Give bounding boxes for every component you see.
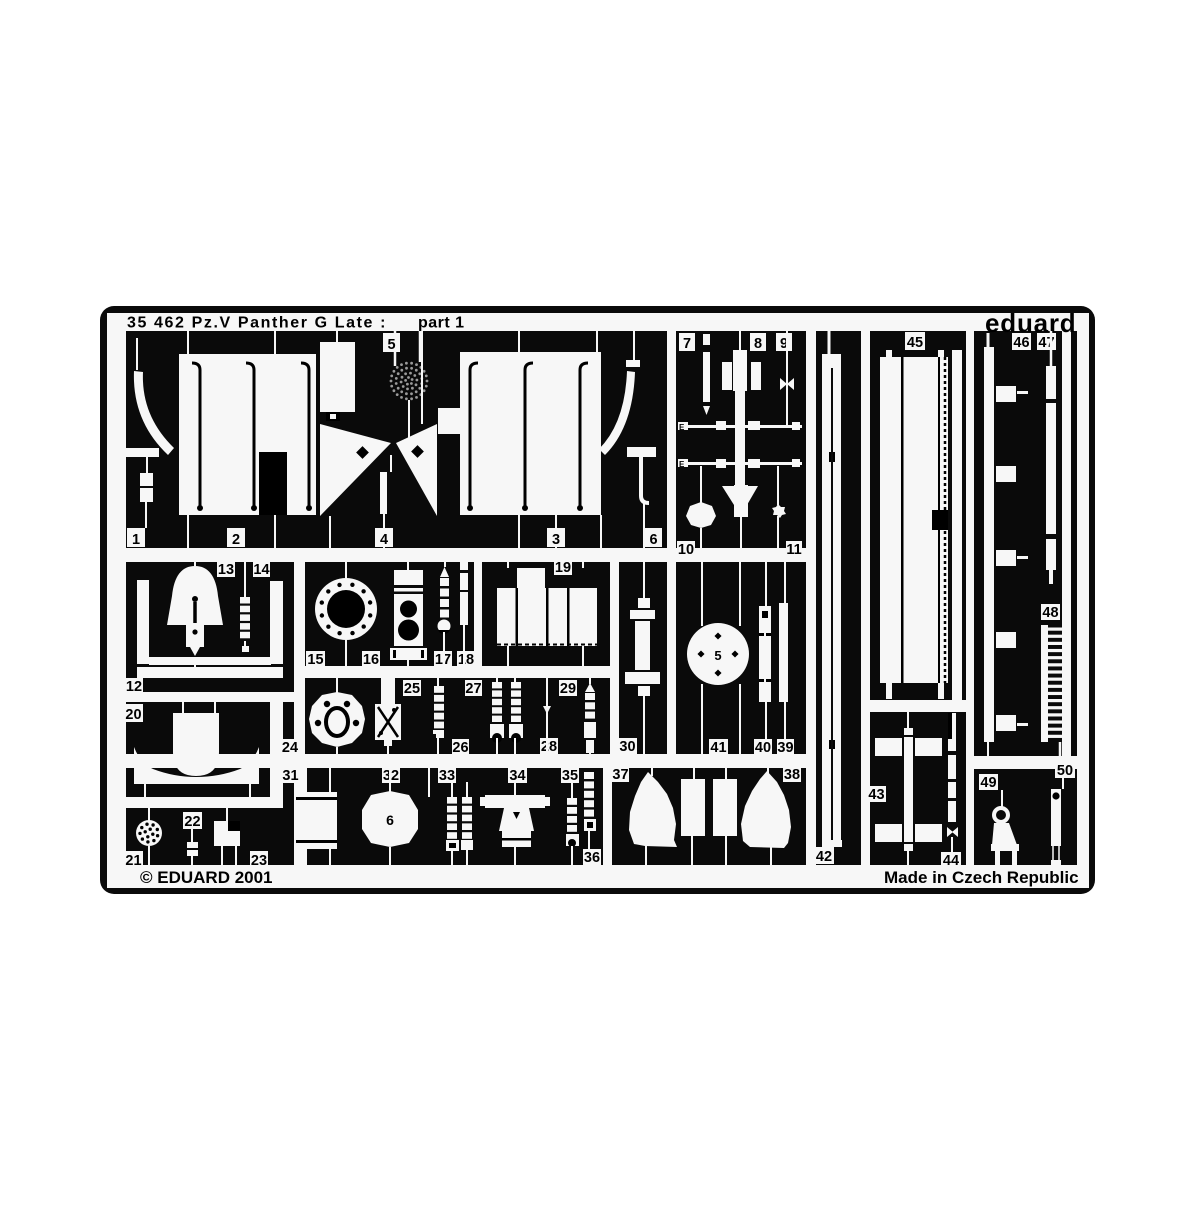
svg-text:20: 20: [125, 707, 141, 723]
svg-text:7: 7: [683, 336, 691, 352]
svg-text:6: 6: [386, 812, 394, 828]
svg-text:5: 5: [387, 337, 395, 353]
svg-text:3: 3: [552, 532, 560, 548]
svg-text:13: 13: [218, 562, 234, 578]
svg-text:35: 35: [562, 768, 578, 784]
svg-text:39: 39: [777, 740, 793, 756]
svg-text:E: E: [679, 460, 685, 469]
svg-text:21: 21: [125, 853, 141, 869]
svg-text:40: 40: [755, 740, 771, 756]
svg-text:© EDUARD 2001: © EDUARD 2001: [140, 868, 273, 887]
svg-text:50: 50: [1057, 763, 1073, 779]
svg-text:37: 37: [612, 767, 628, 783]
svg-text:41: 41: [710, 740, 726, 756]
svg-text:45: 45: [907, 335, 923, 351]
svg-text:22: 22: [184, 814, 200, 830]
svg-text:30: 30: [619, 739, 635, 755]
svg-text:11: 11: [786, 542, 801, 558]
svg-text:27: 27: [465, 681, 481, 697]
svg-text:6: 6: [649, 532, 657, 548]
svg-text:33: 33: [439, 768, 455, 784]
svg-text:12: 12: [126, 679, 142, 695]
svg-text:Made in Czech Republic: Made in Czech Republic: [884, 868, 1079, 887]
svg-text:34: 34: [509, 768, 525, 784]
svg-text:24: 24: [282, 740, 298, 756]
svg-text:29: 29: [560, 681, 576, 697]
svg-text:42: 42: [816, 849, 832, 865]
svg-text:2: 2: [232, 532, 240, 548]
svg-text:48: 48: [1042, 605, 1058, 621]
svg-text:1: 1: [132, 532, 140, 548]
svg-text:18: 18: [458, 652, 474, 668]
svg-text:4: 4: [380, 532, 388, 548]
svg-text:26: 26: [452, 740, 468, 756]
svg-text:49: 49: [980, 775, 996, 791]
svg-text:25: 25: [404, 681, 420, 697]
svg-text:5: 5: [714, 648, 721, 663]
svg-text:8: 8: [754, 336, 762, 352]
svg-text:43: 43: [868, 787, 884, 803]
svg-text:35 462 Pz.V Panther G Late :: 35 462 Pz.V Panther G Late :: [127, 315, 387, 332]
svg-text:28: 28: [541, 739, 557, 755]
svg-text:31: 31: [282, 768, 298, 784]
svg-text:part 1: part 1: [418, 315, 465, 332]
svg-text:15: 15: [307, 652, 323, 668]
svg-text:23: 23: [251, 853, 267, 869]
svg-text:44: 44: [943, 853, 959, 869]
svg-text:38: 38: [784, 767, 800, 783]
svg-text:16: 16: [363, 652, 379, 668]
svg-text:19: 19: [555, 560, 571, 576]
svg-text:14: 14: [253, 562, 269, 578]
svg-text:E: E: [679, 423, 685, 432]
svg-text:46: 46: [1013, 335, 1029, 351]
svg-text:10: 10: [678, 542, 694, 558]
svg-text:36: 36: [584, 850, 600, 866]
